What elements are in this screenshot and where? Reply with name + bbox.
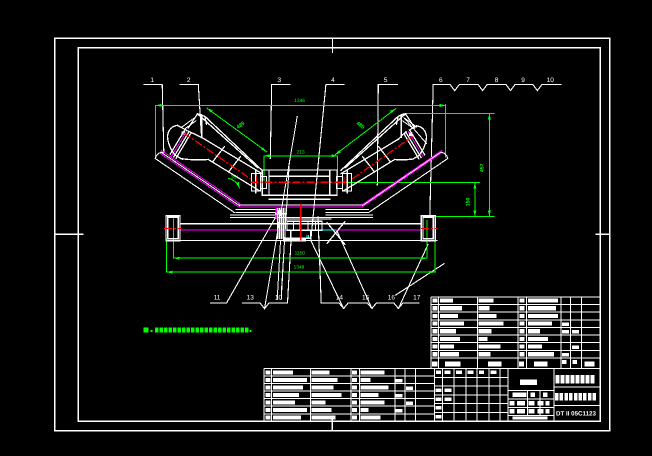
svg-text:9: 9 [521, 77, 525, 84]
svg-text:4: 4 [331, 77, 335, 84]
svg-text:14: 14 [336, 295, 344, 302]
svg-text:13: 13 [247, 295, 255, 302]
svg-text:8: 8 [495, 77, 499, 84]
svg-text:10: 10 [547, 77, 555, 84]
svg-text:11: 11 [214, 295, 221, 302]
svg-text:1346: 1346 [294, 98, 305, 104]
svg-text:16: 16 [388, 295, 396, 302]
svg-text:2: 2 [187, 77, 191, 84]
svg-text:3: 3 [277, 77, 281, 84]
svg-text:7: 7 [466, 77, 470, 84]
svg-text:1150: 1150 [295, 250, 306, 256]
svg-text:5: 5 [384, 77, 388, 84]
svg-text:1: 1 [150, 77, 154, 84]
svg-text:17: 17 [413, 295, 421, 302]
svg-text:DT II 05C1123: DT II 05C1123 [556, 411, 596, 418]
svg-text:213: 213 [297, 149, 305, 155]
svg-text:15: 15 [362, 295, 370, 302]
svg-text:6: 6 [439, 77, 443, 84]
svg-text:150: 150 [466, 197, 472, 206]
svg-text:1349: 1349 [294, 264, 305, 270]
svg-text:457: 457 [480, 163, 486, 172]
